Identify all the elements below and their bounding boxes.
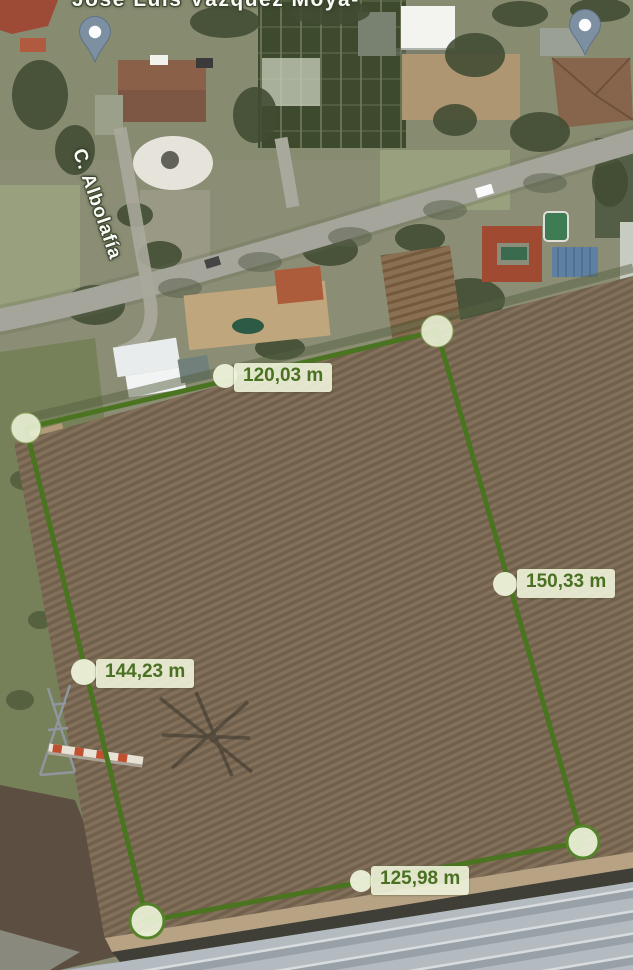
map-viewport[interactable]: José Luis Vázquez Moya- C. Albolafía 120…: [0, 0, 633, 970]
midpoint-handle-left[interactable]: [71, 659, 97, 685]
vertex-handle-west[interactable]: [11, 413, 41, 443]
satellite-imagery[interactable]: [0, 0, 633, 970]
measurement-label-left: 144,23 m: [96, 659, 194, 688]
measurement-label-top: 120,03 m: [234, 363, 332, 392]
map-pin-icon: [568, 8, 602, 56]
measurement-label-right: 150,33 m: [517, 569, 615, 598]
map-pin-icon: [78, 15, 112, 63]
street-label-top: José Luis Vázquez Moya-: [72, 0, 360, 12]
vertex-handle-southeast[interactable]: [567, 826, 599, 858]
vertex-handle-northeast[interactable]: [421, 315, 453, 347]
midpoint-handle-right[interactable]: [493, 572, 517, 596]
midpoint-handle-bottom[interactable]: [350, 870, 372, 892]
vertex-handle-southwest[interactable]: [130, 904, 164, 938]
measurement-label-bottom: 125,98 m: [371, 866, 469, 895]
